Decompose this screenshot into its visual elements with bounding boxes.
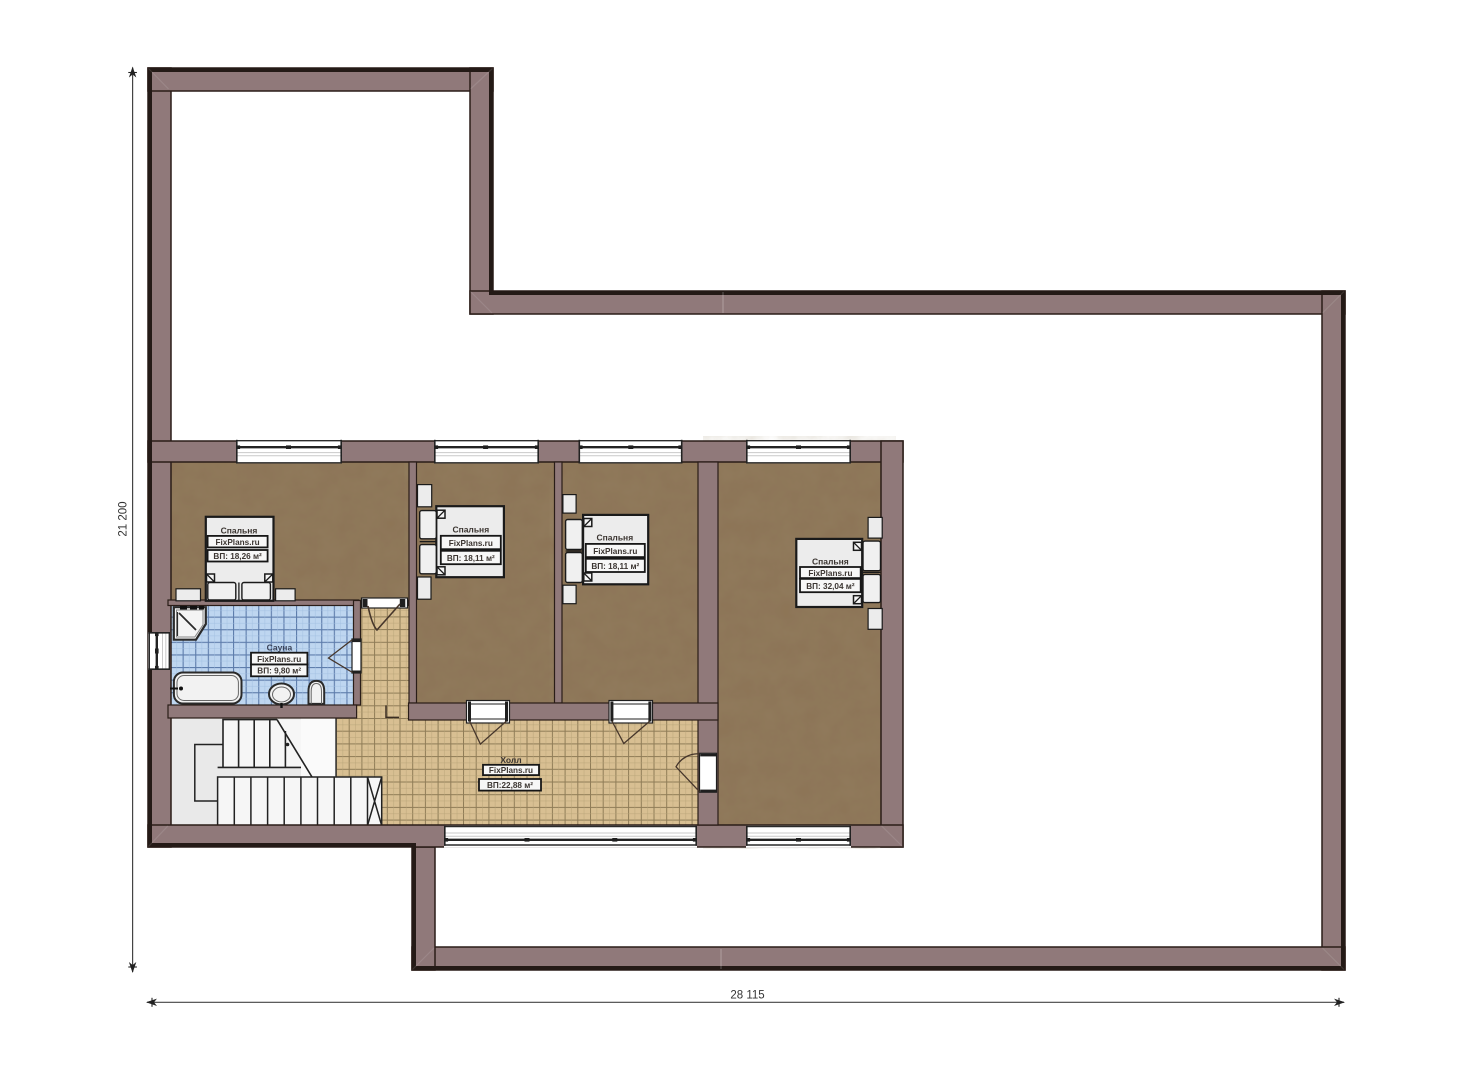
svg-text:Спальня: Спальня — [812, 557, 849, 567]
svg-text:21 200: 21 200 — [118, 501, 130, 536]
svg-text:FixPlans.ru: FixPlans.ru — [593, 547, 637, 556]
svg-text:28 115: 28 115 — [730, 990, 764, 1002]
svg-text:Холл: Холл — [500, 755, 521, 765]
svg-text:FixPlans.ru: FixPlans.ru — [449, 539, 493, 548]
svg-text:Спальня: Спальня — [452, 525, 489, 535]
svg-text:FixPlans.ru: FixPlans.ru — [257, 655, 301, 664]
svg-text:Сауна: Сауна — [267, 643, 293, 653]
svg-text:ВП: 32,04 м²: ВП: 32,04 м² — [806, 582, 855, 591]
svg-text:FixPlans.ru: FixPlans.ru — [489, 766, 533, 775]
svg-text:ВП: 18,11 м²: ВП: 18,11 м² — [591, 562, 639, 571]
svg-text:Спальня: Спальня — [596, 533, 633, 543]
svg-text:ВП: 18,11 м²: ВП: 18,11 м² — [447, 554, 495, 563]
svg-text:FixPlans.ru: FixPlans.ru — [808, 569, 852, 578]
svg-text:Спальня: Спальня — [221, 526, 258, 536]
svg-text:ВП: 18,26 м²: ВП: 18,26 м² — [213, 552, 262, 561]
svg-text:FixPlans.ru: FixPlans.ru — [216, 538, 260, 547]
svg-text:ВП:22,88 м²: ВП:22,88 м² — [487, 781, 533, 790]
svg-text:ВП: 9,80 м²: ВП: 9,80 м² — [257, 667, 301, 676]
